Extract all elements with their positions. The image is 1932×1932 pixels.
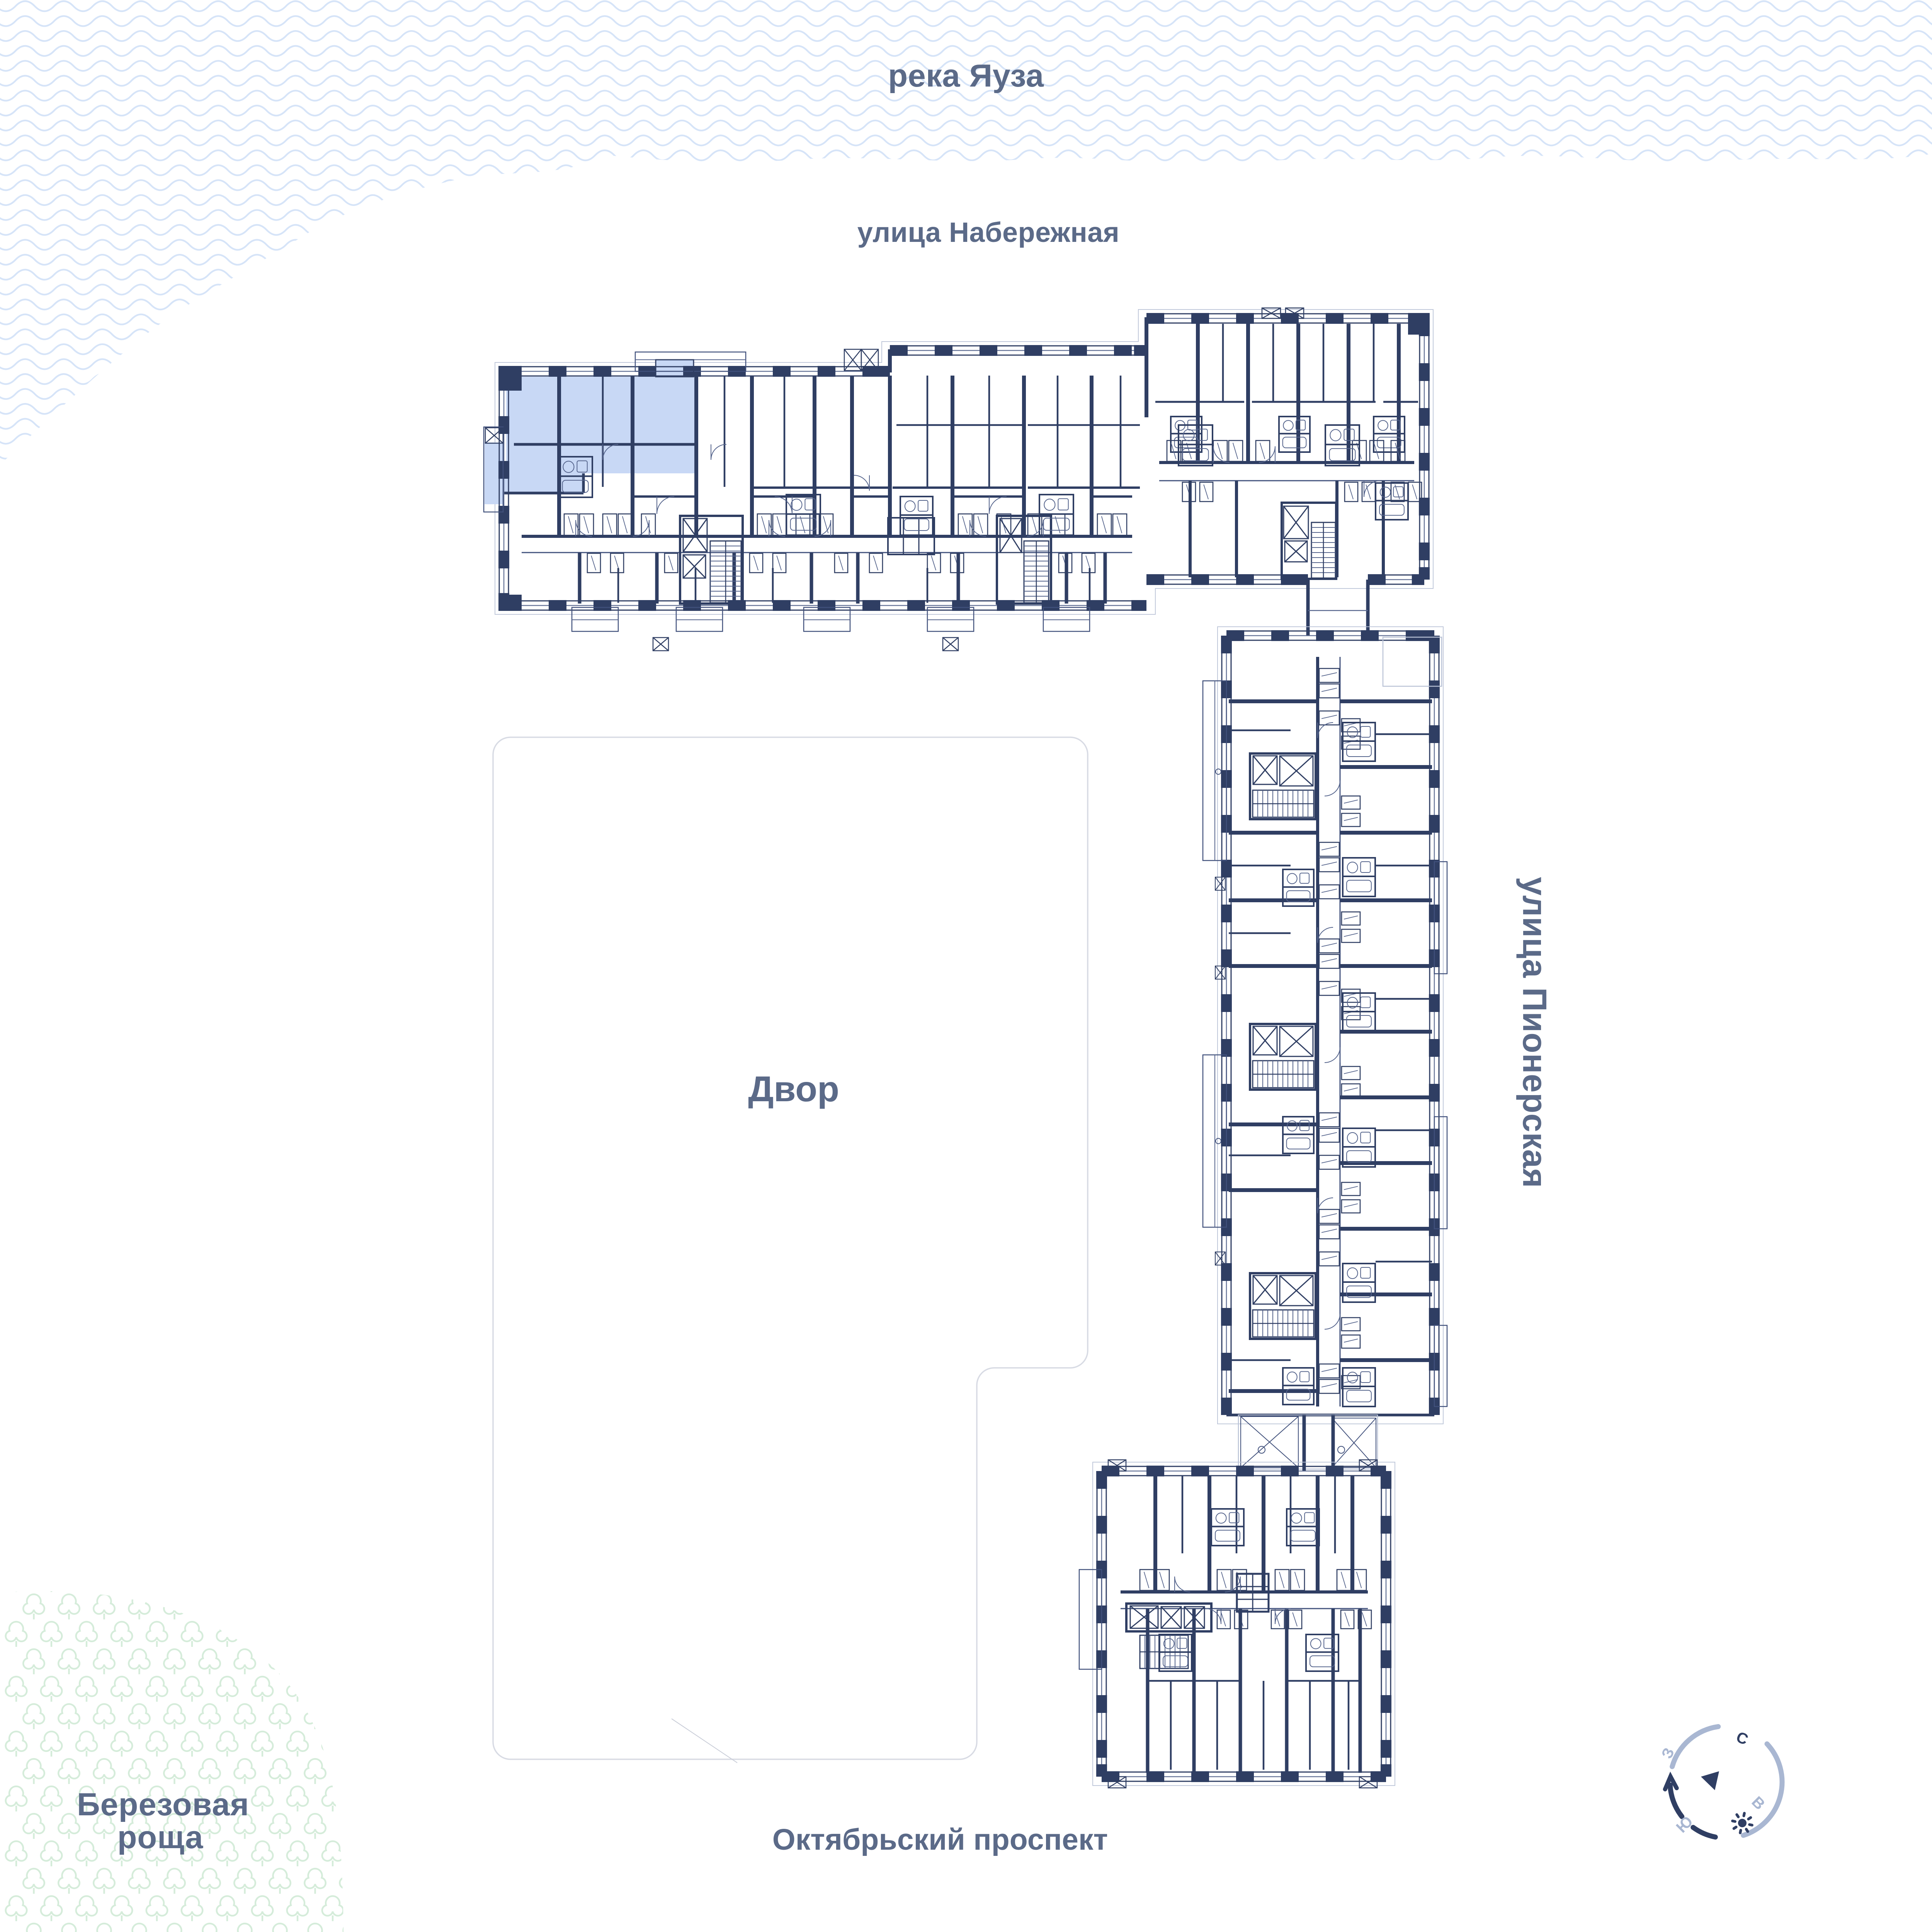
svg-text:Двор: Двор [748,1069,839,1109]
svg-text:роща: роща [117,1819,204,1855]
svg-text:Октябрьский проспект: Октябрьский проспект [772,1823,1108,1856]
svg-text:улица Пионерская: улица Пионерская [1516,877,1553,1188]
svg-text:Березовая: Березовая [77,1786,249,1822]
svg-text:улица Набережная: улица Набережная [857,217,1120,248]
svg-text:река Яуза: река Яуза [888,58,1044,94]
